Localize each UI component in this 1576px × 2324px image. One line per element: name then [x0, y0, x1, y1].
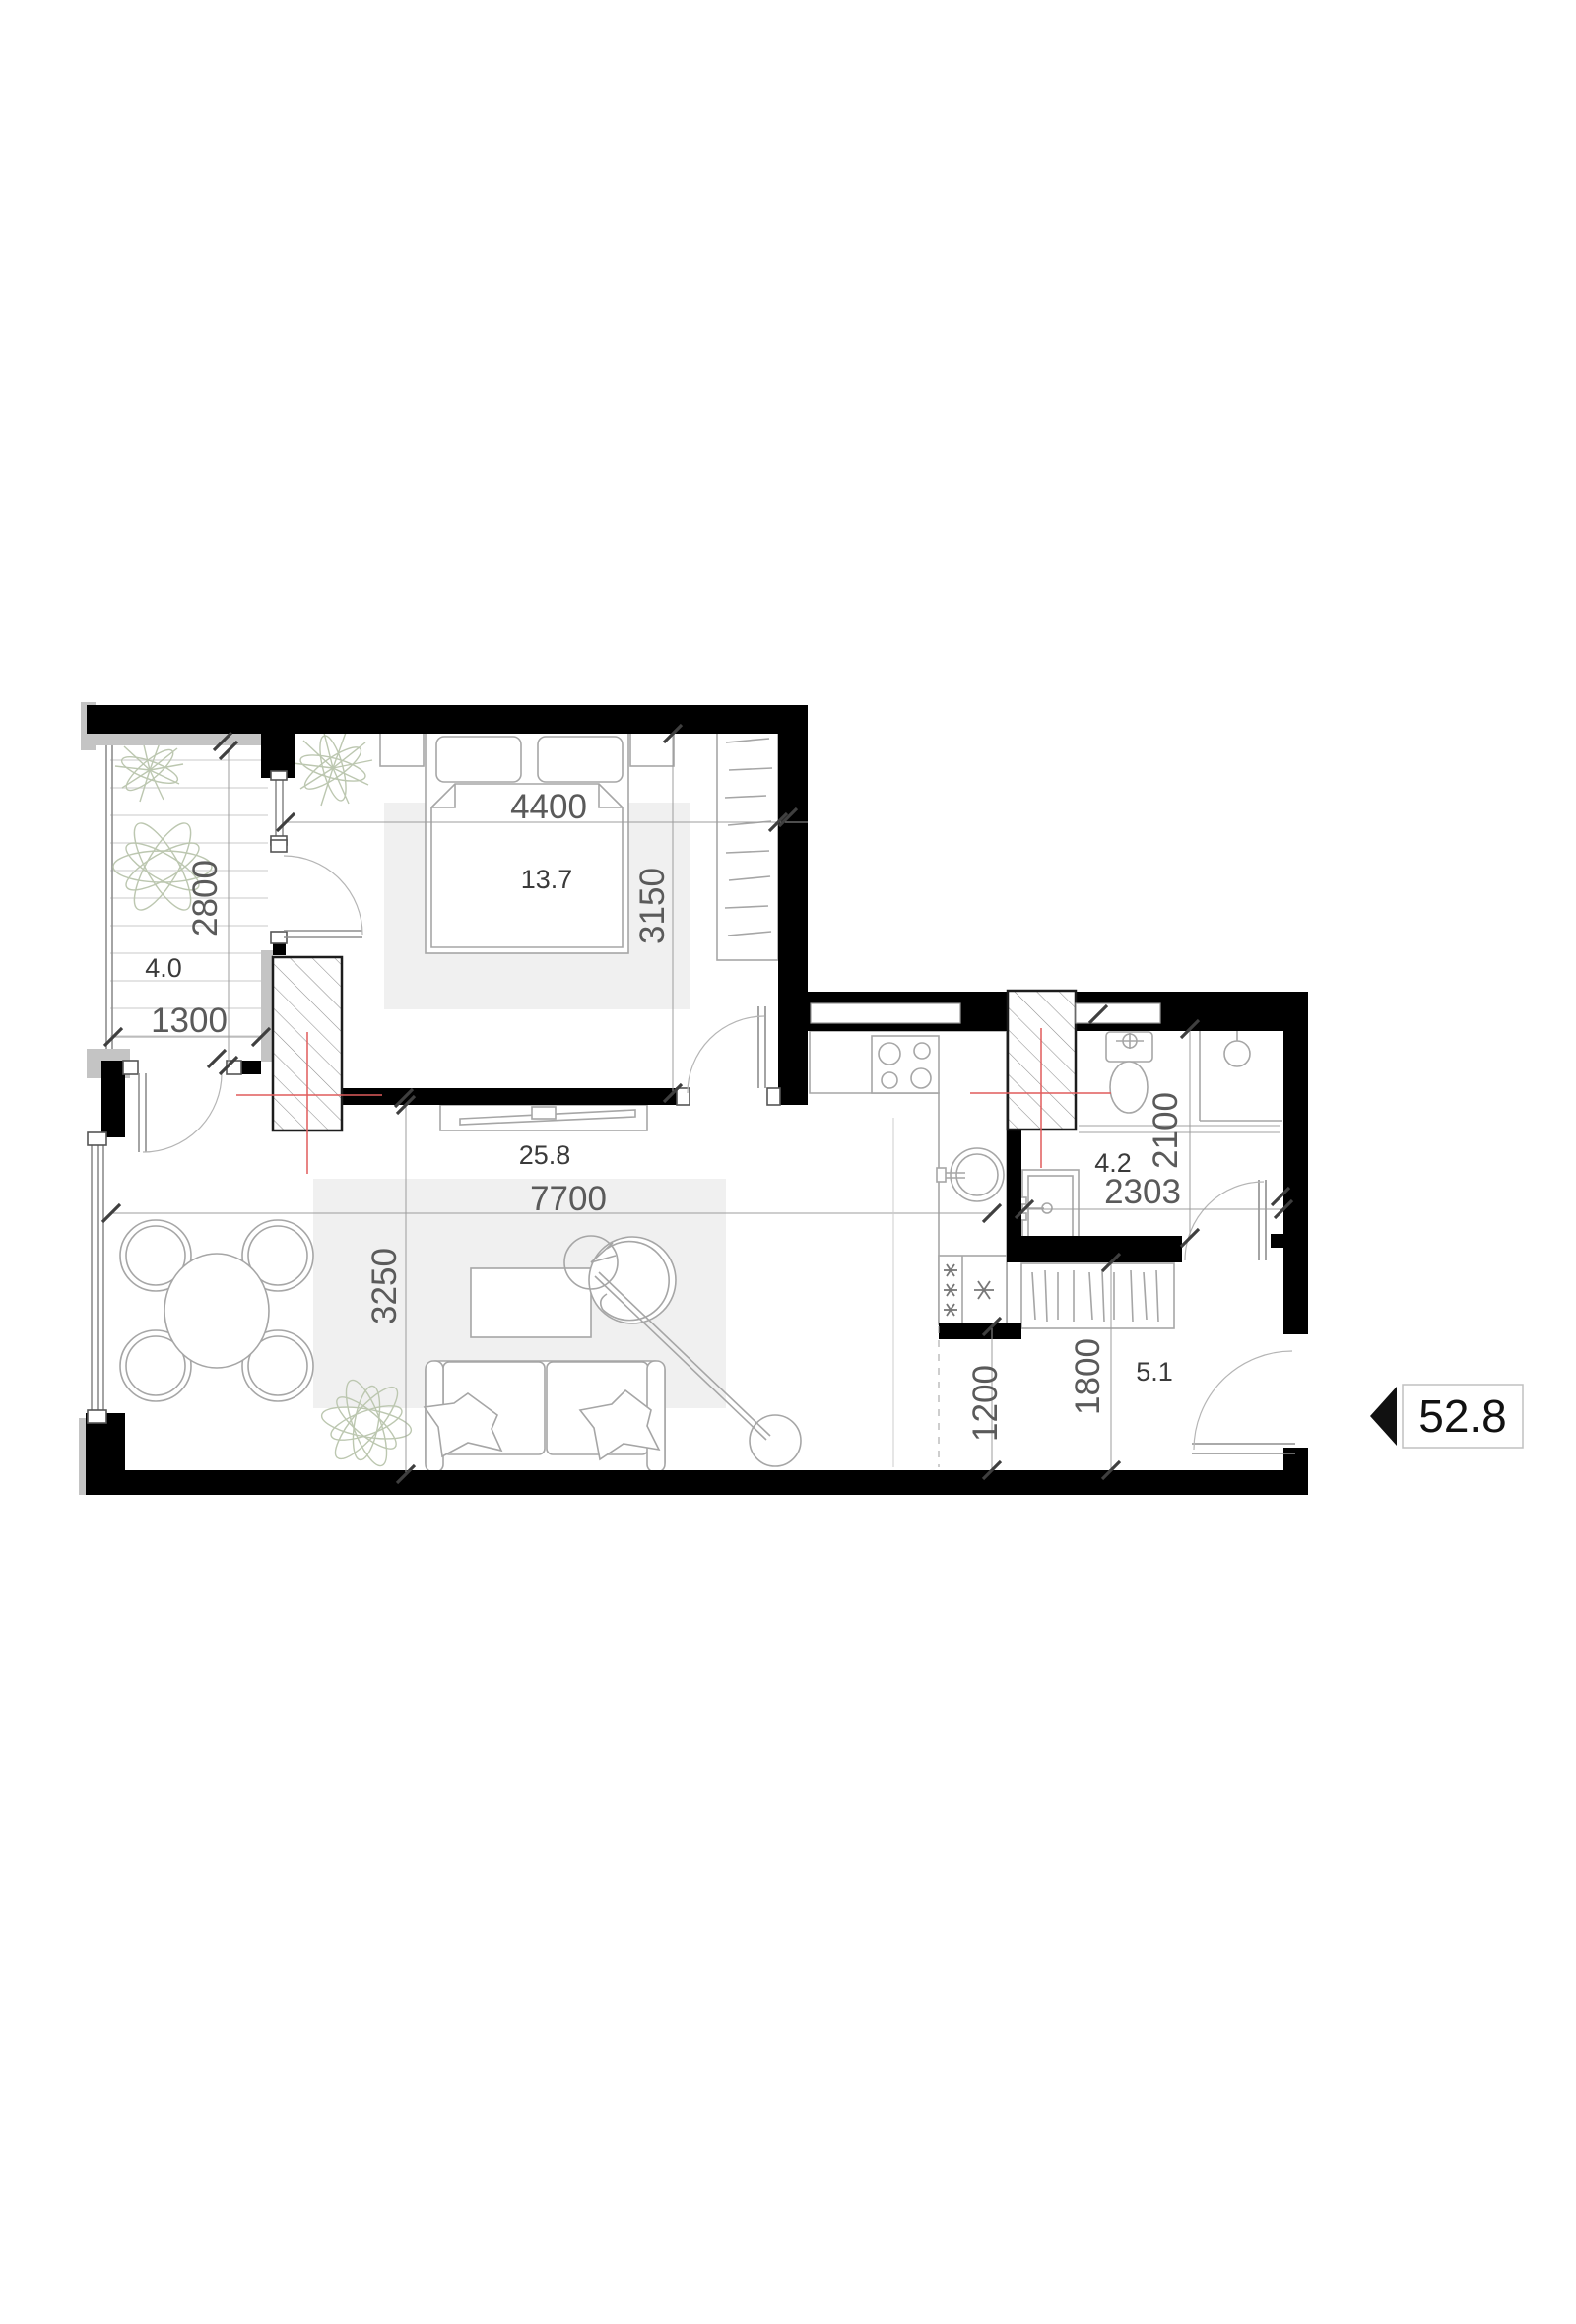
- double-bed: [426, 731, 628, 953]
- balcony-area: 4.0: [145, 953, 182, 983]
- sofa: [425, 1361, 665, 1472]
- hallway-wardrobe: [1021, 1263, 1174, 1328]
- living-area: 25.8: [519, 1140, 571, 1170]
- wall-bathroom-bottom: [1021, 1236, 1182, 1262]
- bedroom-wardrobe: [717, 728, 778, 960]
- stove-icon: [872, 1036, 939, 1093]
- total-area-badge: 52.8: [1370, 1385, 1523, 1448]
- balcony-height-dim: 2800: [186, 860, 225, 936]
- bedroom-balcony-door: [271, 840, 362, 943]
- living-width-dim: 7700: [530, 1180, 607, 1218]
- nightstand-left: [380, 730, 424, 766]
- wall-top: [87, 705, 808, 734]
- entry-door: [1192, 1351, 1295, 1453]
- floor-plan-page: 2800 4.0 1300 4400 13.7 3150 25.8 7700 3…: [0, 0, 1576, 2324]
- passage-dim: 1200: [966, 1365, 1005, 1442]
- balcony-width-dim: 1300: [151, 1001, 228, 1040]
- nightstand-right: [630, 730, 674, 766]
- wall-kitchen-stub: [939, 1323, 1021, 1339]
- bathroom-height-dim: 2100: [1147, 1092, 1185, 1169]
- lounge-chair: [589, 1237, 676, 1323]
- floor-plan-canvas: 2800 4.0 1300 4400 13.7 3150 25.8 7700 3…: [0, 0, 1576, 2324]
- living-height-dim: 3250: [365, 1248, 404, 1324]
- toilet-icon: [1106, 1032, 1152, 1113]
- bedroom-area: 13.7: [521, 865, 573, 894]
- balcony-living-door: [123, 1061, 241, 1152]
- badge-arrow-icon: [1370, 1387, 1397, 1446]
- bathroom-door: [1185, 1180, 1266, 1260]
- balcony-plant-top: [115, 737, 183, 802]
- living-room-window: [88, 1132, 106, 1423]
- washer-icon: [939, 1256, 1007, 1324]
- total-area-value: 52.8: [1418, 1390, 1507, 1442]
- bedroom-door: [677, 1006, 780, 1105]
- kitchen: [810, 1031, 1007, 1324]
- wall-left-upper: [101, 1061, 125, 1137]
- balcony-railing: [106, 745, 112, 1054]
- wall-bedroom-right: [778, 705, 808, 1105]
- bedroom-height-dim: 3150: [633, 868, 672, 944]
- bedroom-plant: [293, 729, 372, 806]
- dining-table: [164, 1254, 269, 1368]
- tv-console: [440, 1105, 647, 1130]
- coffee-table: [471, 1268, 591, 1337]
- wall-bathroom-left: [1007, 1130, 1021, 1262]
- bedroom-width-dim: 4400: [510, 788, 587, 826]
- bedroom-balcony-window: [271, 771, 287, 845]
- hallway-height-dim: 1800: [1069, 1338, 1107, 1415]
- wall-bedroom-bottom: [343, 1088, 689, 1105]
- wall-bottom: [86, 1470, 1308, 1495]
- bathroom-width-dim: 2303: [1104, 1173, 1181, 1211]
- wall-right: [1283, 992, 1308, 1334]
- hallway-area: 5.1: [1136, 1357, 1173, 1387]
